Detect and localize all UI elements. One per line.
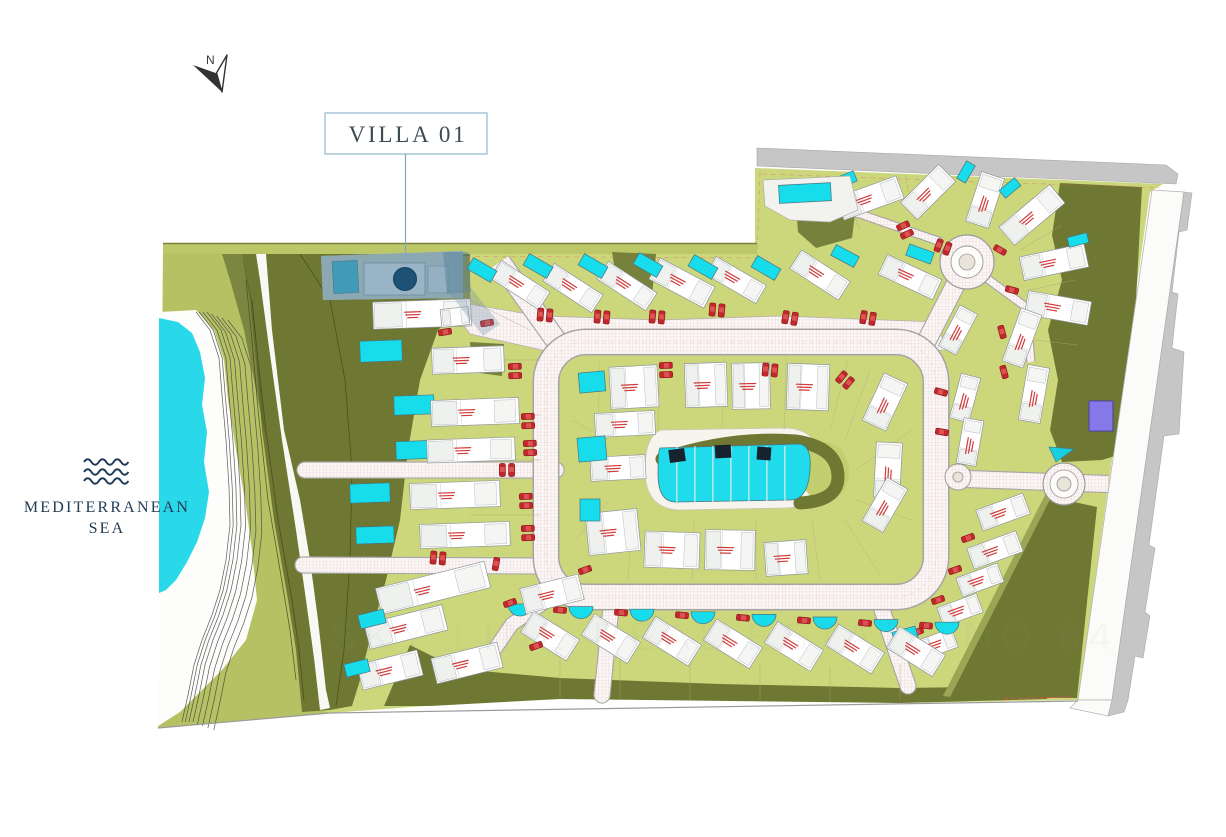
svg-text:MEDITERRANEAN: MEDITERRANEAN [24, 499, 190, 516]
svg-text:SEA: SEA [89, 520, 126, 537]
svg-text:N: N [206, 53, 215, 67]
svg-text:VILLA 01: VILLA 01 [349, 122, 468, 147]
svg-text:SKY LINE REAL ESTATE NO 64: SKY LINE REAL ESTATE NO 64 [330, 615, 1119, 659]
